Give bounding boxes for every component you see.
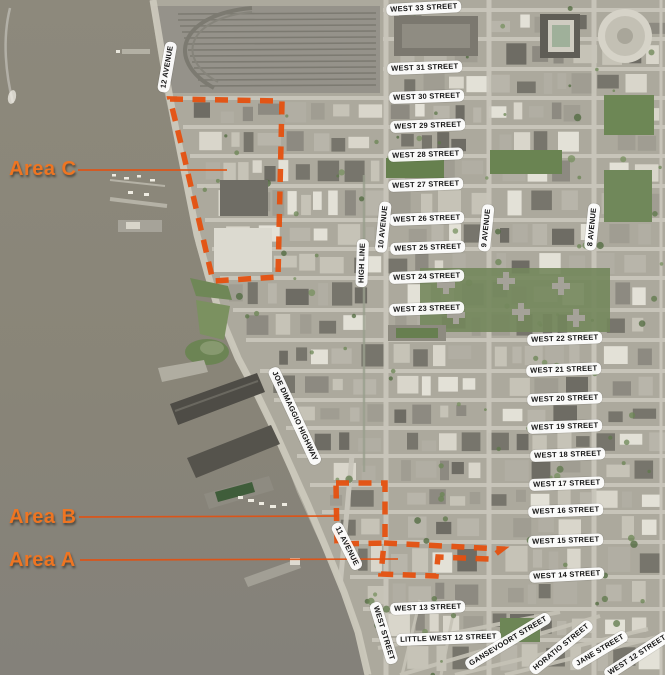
street-label-west-17-street: WEST 17 STREET [529,476,605,490]
street-label-west-29-street: WEST 29 STREET [390,118,466,132]
area-a-label: Area A [9,550,76,570]
street-label-west-13-street: WEST 13 STREET [390,600,466,614]
rotated-label-high-line: HIGH LINE [355,239,368,288]
street-label-west-31-street: WEST 31 STREET [387,60,463,74]
street-label-west-25-street: WEST 25 STREET [390,240,466,254]
area-c-label: Area C [9,159,76,179]
street-label-little-west-12-street: LITTLE WEST 12 STREET [396,630,501,645]
rotated-label-11-avenue: 11 AVENUE [330,521,363,571]
street-label-west-30-street: WEST 30 STREET [389,89,465,103]
rotated-label-10-avenue: 10 AVENUE [375,201,392,253]
rotated-label-12-avenue: 12 AVENUE [157,41,177,93]
area-b-label: Area B [9,507,76,527]
street-label-west-18-street: WEST 18 STREET [530,447,606,461]
street-label-west-23-street: WEST 23 STREET [389,301,465,315]
street-label-west-19-street: WEST 19 STREET [527,419,603,433]
street-label-west-28-street: WEST 28 STREET [388,147,464,161]
street-label-west-20-street: WEST 20 STREET [527,391,603,405]
street-label-west-33-street: WEST 33 STREET [386,0,462,16]
rotated-label-8-avenue: 8 AVENUE [584,203,600,251]
street-label-west-26-street: WEST 26 STREET [389,211,465,225]
street-label-west-27-street: WEST 27 STREET [388,177,464,191]
aerial-map: Area A Area B Area C WEST 33 STREETWEST … [0,0,665,675]
map-labels: Area A Area B Area C WEST 33 STREETWEST … [0,0,665,675]
rotated-label-joe-dimaggio-highway: JOE DIMAGGIO HIGHWAY [267,365,322,466]
street-label-west-24-street: WEST 24 STREET [389,269,465,283]
street-label-west-15-street: WEST 15 STREET [528,533,604,547]
street-label-west-16-street: WEST 16 STREET [528,503,604,517]
rotated-label-9-avenue: 9 AVENUE [478,204,494,252]
street-label-west-21-street: WEST 21 STREET [526,362,602,376]
street-label-west-14-street: WEST 14 STREET [529,567,605,583]
street-label-west-22-street: WEST 22 STREET [527,331,603,345]
